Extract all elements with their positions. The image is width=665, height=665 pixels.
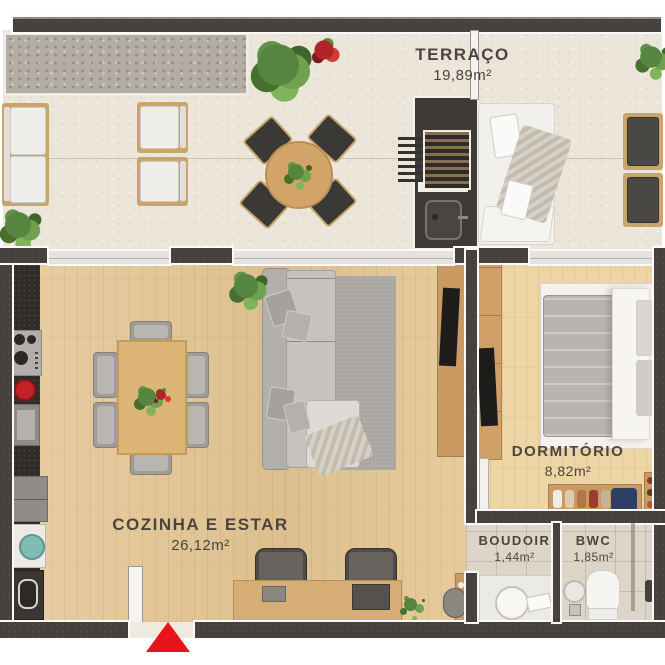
outer-wall-bottom-left [0,622,128,638]
room-area: 26,12m² [103,536,298,556]
bedroom-door [479,458,489,515]
vanity-sink [495,586,529,620]
bed-pillow-1 [636,300,654,356]
room-name: BWC [551,533,636,550]
oven [12,570,44,620]
kitchen-red-decor [14,379,36,401]
desk-monitor [352,584,390,610]
bed-pillow-2 [636,360,654,416]
outer-wall-left [0,248,12,638]
room-name: DORMITÓRIO [500,442,636,462]
outer-wall-top [13,17,661,32]
desk-items [262,586,286,602]
room-label-bwc: BWC 1,85m² [551,533,636,565]
terrace-plant-corner [5,212,31,238]
desk-plant [404,598,417,611]
wall-bedroom-bwc [477,511,665,523]
toilet [586,570,620,612]
dining-chair-left-2 [93,402,118,448]
dining-chair-top [130,321,172,342]
bbq-skewers [398,136,423,182]
floor-drain [569,604,581,616]
room-area: 19,89m² [390,66,535,86]
wall-living-bedroom [466,250,477,523]
room-area: 1,85m² [551,550,636,566]
bed-duvet [543,295,617,437]
cooktop [10,330,42,376]
dining-centerpiece [138,388,156,406]
fridge [12,476,48,522]
toilet-tank [588,608,618,620]
floor-plan: TERRAÇO 19,89m² COZINHA E ESTAR 26,12m² … [0,0,665,665]
terrace-planter [3,32,249,96]
kitchen-sink [12,404,40,446]
shower-fixture [645,580,653,602]
side-table-decor [443,588,467,618]
window-living [232,249,455,266]
outer-wall-bottom-right [195,622,665,638]
room-label-terraco: TERRAÇO 19,89m² [390,44,535,86]
room-name: TERRAÇO [390,44,535,66]
living-plant [234,274,258,298]
dining-chair-left-1 [93,352,118,398]
window-kitchen [47,249,171,266]
dining-chair-right-2 [184,402,209,448]
outdoor-armchair-2 [137,157,188,206]
sun-lounger-2 [623,173,663,227]
terrace-plant-right [640,46,662,68]
washing-machine [12,524,46,568]
room-name: COZINHA E ESTAR [103,514,298,536]
dining-chair-right-1 [184,352,209,398]
window-bedroom [528,249,654,266]
wall-kitchen-corner [0,248,47,263]
potted-plant-large [257,44,299,86]
outdoor-armchair-1 [137,102,188,153]
living-room-floor [12,250,466,622]
outdoor-loveseat [2,103,49,206]
patio-table-centerpiece [288,164,304,180]
entry-door [128,566,143,624]
sun-lounger-1 [623,113,663,170]
outer-wall-right [654,248,665,638]
room-area: 8,82m² [500,462,636,480]
bbq-sink [425,200,462,240]
wall-segment-terrace-1 [171,248,232,263]
room-label-cozinha: COZINHA E ESTAR 26,12m² [103,514,298,556]
wall-living-boudoir-stub [466,573,477,622]
red-flower-plant [314,40,333,59]
dining-centerpiece-flowers [156,390,166,400]
bwc-sink [563,580,586,603]
room-label-dormitorio: DORMITÓRIO 8,82m² [500,442,636,480]
bbq-grill [423,130,471,190]
